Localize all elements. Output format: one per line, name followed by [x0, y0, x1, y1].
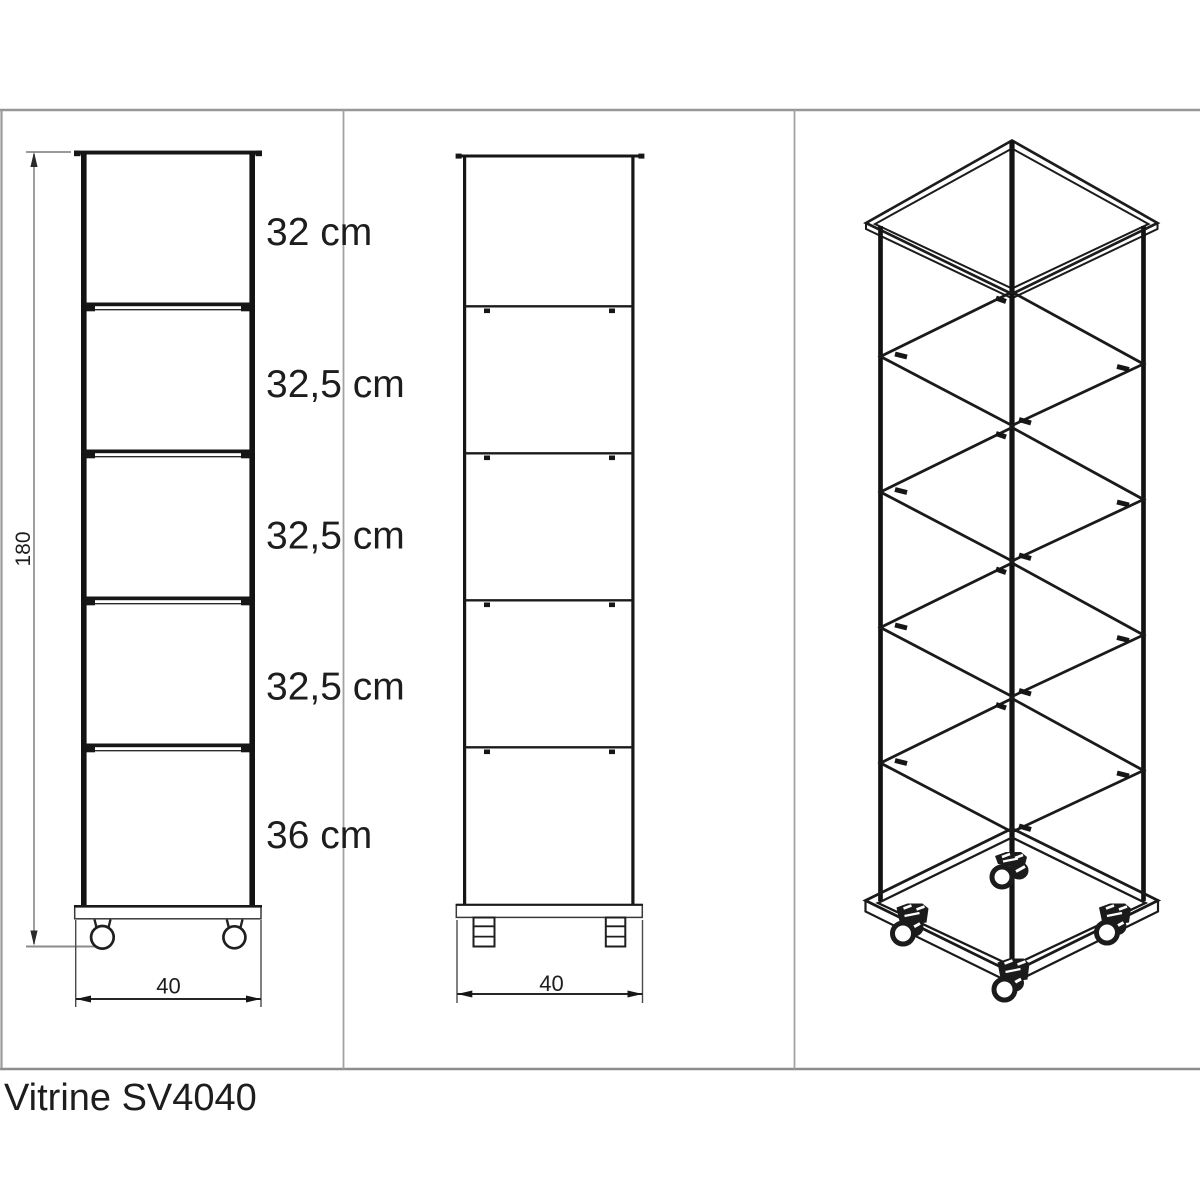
svg-text:32 cm: 32 cm	[266, 211, 372, 254]
svg-text:32,5 cm: 32,5 cm	[266, 363, 405, 406]
svg-text:32,5 cm: 32,5 cm	[266, 515, 405, 558]
svg-text:Vitrine SV4040: Vitrine SV4040	[4, 1077, 257, 1119]
svg-text:40: 40	[156, 974, 180, 999]
svg-text:40: 40	[539, 971, 563, 996]
svg-text:180: 180	[12, 531, 35, 566]
svg-text:32,5 cm: 32,5 cm	[266, 666, 405, 709]
svg-text:36 cm: 36 cm	[266, 814, 372, 857]
